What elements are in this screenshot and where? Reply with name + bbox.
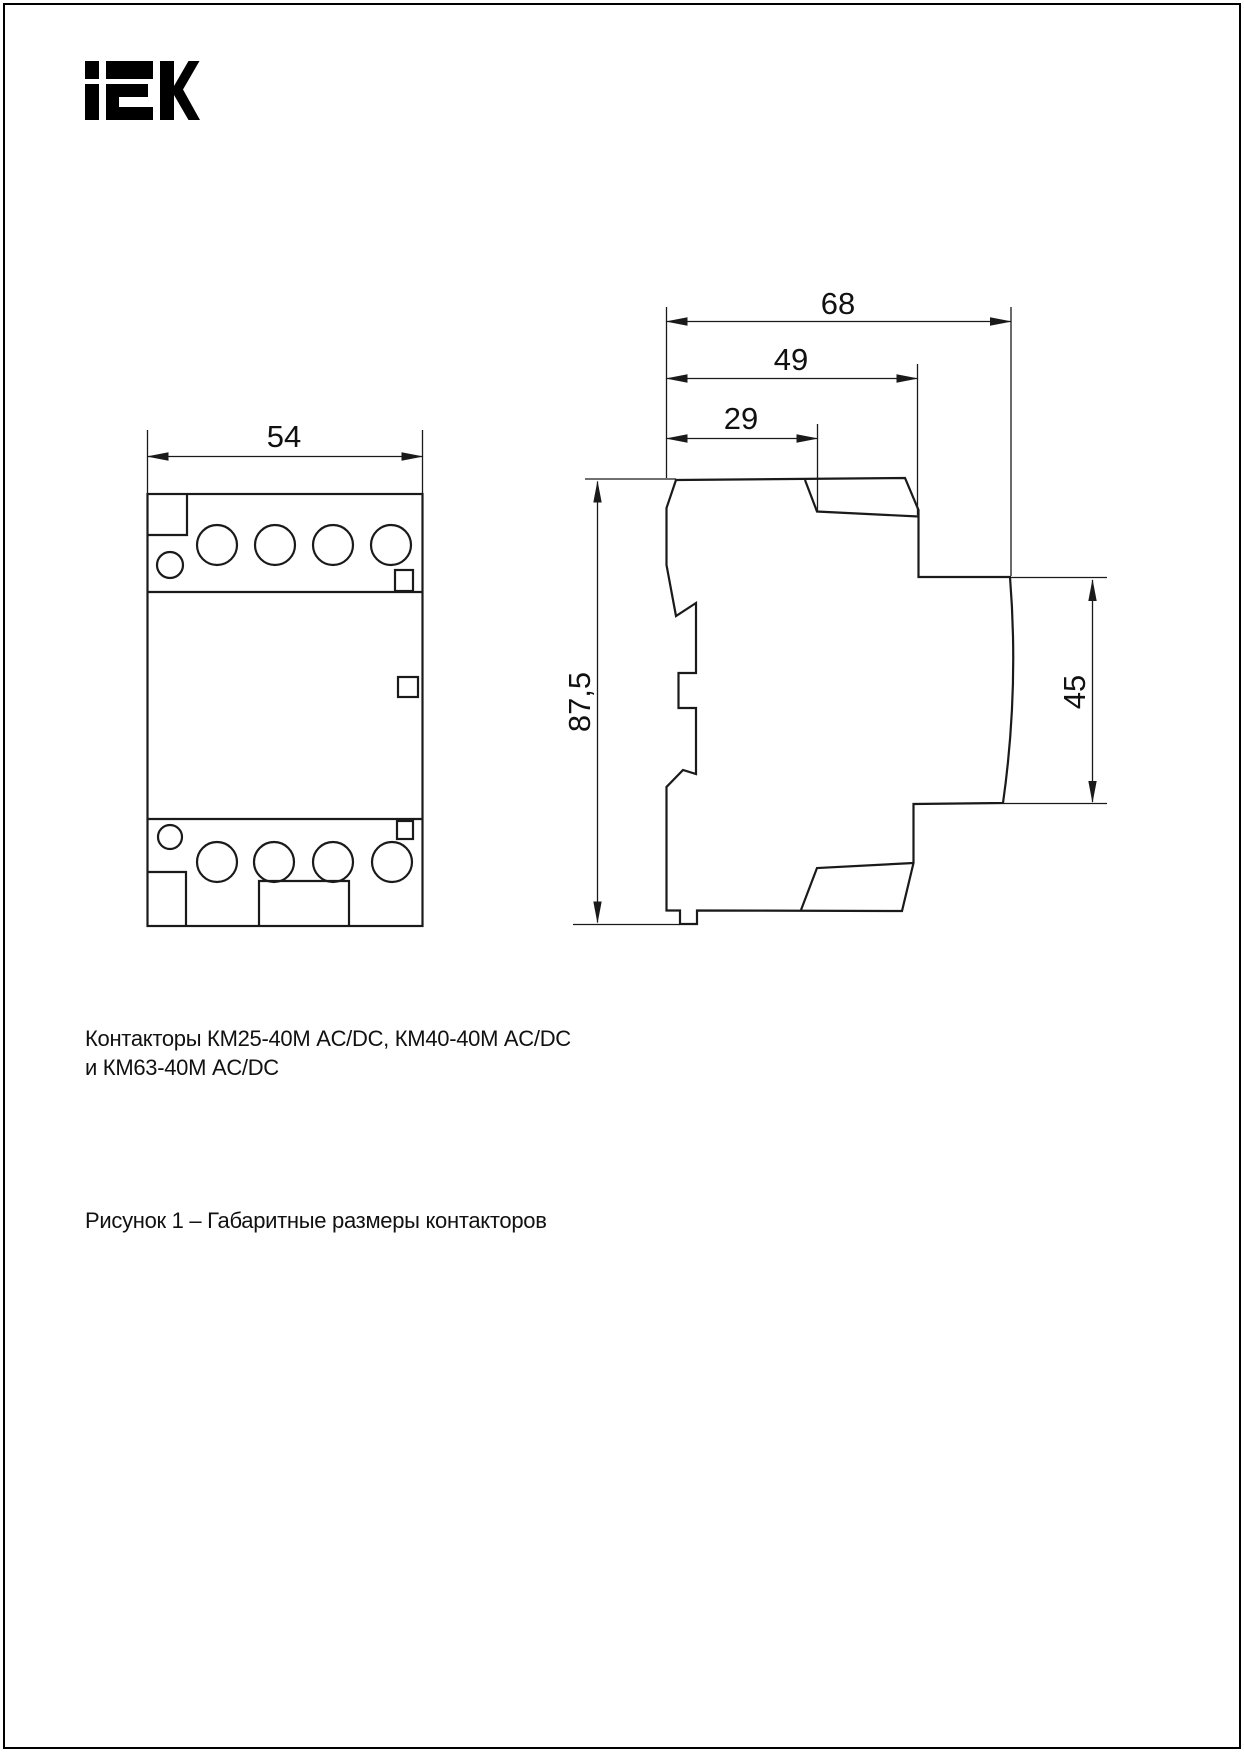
front-body-outline xyxy=(148,494,423,926)
logo-e-bottom-bar xyxy=(106,107,153,120)
logo-i-dot xyxy=(85,61,99,79)
front-bottom-small-hole xyxy=(158,825,182,849)
front-bottom-left-tab xyxy=(148,872,187,926)
front-bottom-center-tab xyxy=(259,881,349,926)
dimension-drawing: 54 68 49 29 xyxy=(0,0,1244,1752)
side-dim-45: 45 xyxy=(1004,578,1107,804)
front-bottom-terminal-screws xyxy=(197,842,412,882)
side-dim-29: 29 xyxy=(667,401,818,511)
side-dim-87-5-label: 87,5 xyxy=(562,672,597,732)
side-dim-29-label: 29 xyxy=(724,401,758,436)
product-models-line2: и КМ63-40М AC/DC xyxy=(85,1053,571,1082)
figure-caption: Рисунок 1 – Габаритные размеры контактор… xyxy=(85,1206,547,1235)
front-middle-indicator-window xyxy=(398,677,418,697)
logo-e-top-bar xyxy=(106,61,153,79)
logo-e-mid-bar xyxy=(106,84,148,97)
front-dim-54-label: 54 xyxy=(267,419,301,454)
front-top-small-hole xyxy=(157,552,183,578)
side-top-step-face xyxy=(805,480,919,517)
side-body-outline xyxy=(667,478,1014,924)
side-view xyxy=(667,478,1014,924)
side-bottom-step-face xyxy=(801,863,914,910)
side-dim-68: 68 xyxy=(667,286,1012,576)
product-models-line1: Контакторы КМ25-40М AC/DC, КМ40-40М AC/D… xyxy=(85,1024,571,1053)
side-dim-45-label: 45 xyxy=(1057,675,1092,709)
front-dim-54: 54 xyxy=(148,419,423,493)
logo-k xyxy=(160,61,200,120)
side-dim-68-label: 68 xyxy=(821,286,855,321)
front-top-left-square xyxy=(148,494,188,535)
logo-i-stem xyxy=(85,84,99,120)
front-bottom-right-slot xyxy=(397,821,413,839)
front-view xyxy=(148,494,423,926)
datasheet-page: 54 68 49 29 xyxy=(0,0,1244,1752)
side-dim-87-5: 87,5 xyxy=(562,479,680,925)
side-dim-49: 49 xyxy=(667,342,918,515)
product-models-caption: Контакторы КМ25-40М AC/DC, КМ40-40М AC/D… xyxy=(85,1024,571,1082)
iek-logo xyxy=(85,61,200,120)
side-dim-49-label: 49 xyxy=(774,342,808,377)
front-top-terminal-screws xyxy=(197,525,411,565)
front-top-right-slot xyxy=(395,570,413,591)
